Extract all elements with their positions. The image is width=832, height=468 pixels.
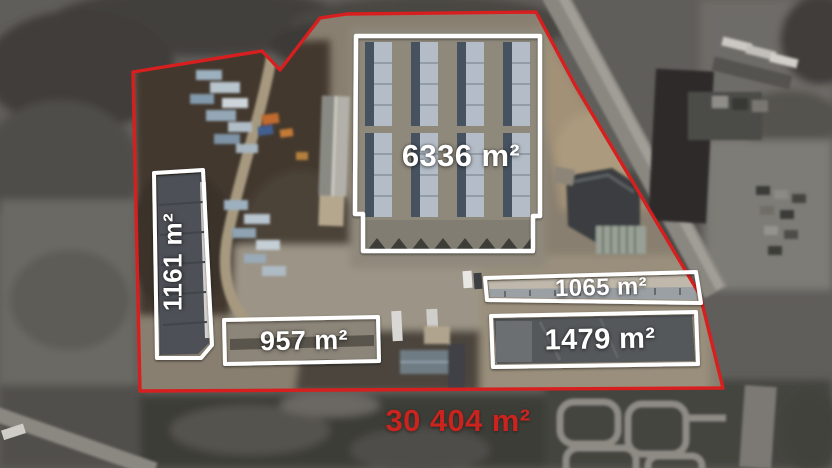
aerial-property-screenshot: 6336 m² 1161 m² 957 m² 1065 m² 1479 m² 3…: [0, 0, 832, 468]
area-label-1161: 1161 m²: [158, 213, 189, 311]
area-label-1065: 1065 m²: [555, 273, 648, 303]
area-label-6336: 6336 m²: [402, 138, 520, 174]
area-label-957: 957 m²: [260, 325, 348, 358]
aerial-photo: [0, 0, 832, 468]
total-area-label: 30 404 m²: [386, 403, 531, 439]
area-label-1479: 1479 m²: [544, 323, 655, 358]
